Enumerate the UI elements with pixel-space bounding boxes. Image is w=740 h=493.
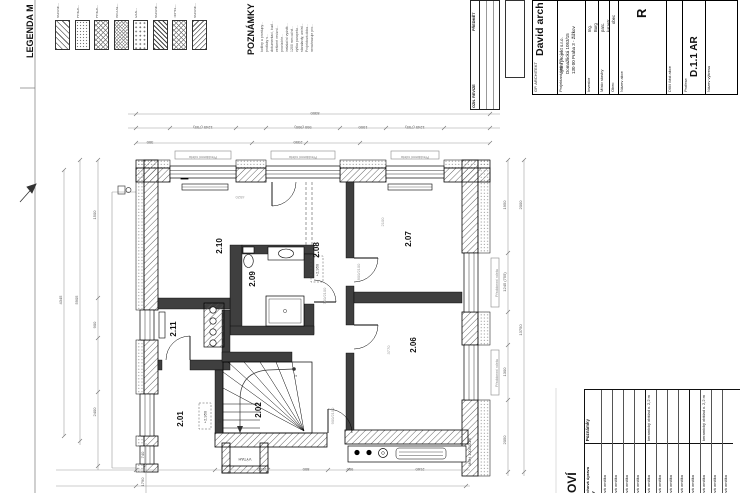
svg-text:2400: 2400 <box>92 407 97 417</box>
title-col-profession: Profese D.1.1 AR <box>682 1 705 94</box>
finish-surface: štuková omítka <box>669 475 673 493</box>
finish-surface: štuková omítka <box>614 475 618 493</box>
room-label: 2.06 <box>409 337 418 353</box>
site-line: parc. <box>601 0 606 32</box>
washbasin <box>279 249 294 258</box>
designer-line: 130 00 Praha 3 - Žižkov <box>572 0 577 74</box>
svg-text:950 (900): 950 (900) <box>294 125 312 130</box>
municipality-value: obec <box>612 0 617 24</box>
svg-text:1245 (755): 1245 (755) <box>193 125 213 130</box>
title-col-investor: Investor Ing. Burg <box>585 1 598 94</box>
legend-title: LEGENDA M <box>26 0 36 58</box>
legend-swatch <box>192 20 207 50</box>
svg-text:800: 800 <box>302 467 309 472</box>
finishes-row: štuková omítka <box>623 390 634 493</box>
drawing-sheet: 2.10 2.09 2.08 2.07 2.11 2.01 2.02 2.06 … <box>0 0 740 493</box>
svg-text:300: 300 <box>146 140 153 145</box>
architect-name: David arch <box>535 0 547 56</box>
elevator-label: VÝTAH <box>238 457 251 462</box>
finishes-row: štuková omítka <box>601 390 612 493</box>
svg-text:13750: 13750 <box>518 324 523 336</box>
finish-surface: štuková omítka <box>625 475 629 493</box>
project-name: R <box>635 0 649 18</box>
svg-text:1950: 1950 <box>502 200 507 210</box>
finish-note: keramický obklad v. 2,2 m <box>647 395 651 441</box>
svg-text:1300: 1300 <box>502 367 507 377</box>
revision-header-predmet: PŘEDMĚT <box>472 0 476 31</box>
legend-swatch <box>114 20 129 50</box>
gutter-icon <box>118 186 131 194</box>
title-col-designer: Projektant část PD optim projekt s.r.o. … <box>557 1 585 94</box>
legend-label: TEPEL... <box>174 0 178 18</box>
finishes-row: keramický obklad v. 2,2 m štuková omítka <box>700 390 711 493</box>
title-col-municipality: Obec obec <box>609 1 618 94</box>
finish-surface: štuková omítka <box>658 475 662 493</box>
svg-text:2000: 2000 <box>518 200 523 210</box>
corridor-opening-dashed <box>306 182 312 245</box>
legend-swatch <box>133 20 148 50</box>
svg-text:2100: 2100 <box>380 217 385 227</box>
svg-text:Předokenní roleta: Předokenní roleta <box>401 155 429 159</box>
investor-line: Ing. <box>588 0 593 32</box>
legend-swatch <box>75 20 90 50</box>
svg-text:+2,950: +2,950 <box>203 410 208 423</box>
finishes-header-notes: Poznámky <box>586 419 591 441</box>
svg-text:800/2100: 800/2100 <box>356 263 361 280</box>
field-label: Investor <box>587 48 591 92</box>
revision-row-divider <box>486 1 487 109</box>
svg-text:1000: 1000 <box>358 125 368 130</box>
notes-title: POZNÁMKY <box>247 0 257 55</box>
field-label: Dílčí část akce <box>668 48 672 92</box>
field-label: Místo stavby <box>600 48 604 92</box>
legend-swatch <box>94 20 109 50</box>
room-label: 2.01 <box>176 411 185 427</box>
svg-text:Předokenní roleta: Předokenní roleta <box>495 269 499 297</box>
finishes-row: štuková omítka <box>689 390 700 493</box>
wc-tank <box>243 247 254 253</box>
title-block: GP. ARCHITEKT David arch Projektant část… <box>532 0 738 95</box>
svg-text:1245 (755): 1245 (755) <box>405 125 425 130</box>
svg-text:900: 900 <box>92 321 97 328</box>
beam-annotation: MSH 100/100/6 <box>467 437 472 466</box>
svg-text:4345: 4345 <box>58 295 63 305</box>
legend-label: INSTAL... <box>116 0 120 18</box>
field-label: Obec <box>611 48 615 92</box>
legend-label: NOSNÉ... <box>194 0 198 18</box>
svg-text:8300: 8300 <box>310 111 320 116</box>
finishes-header-col: Poznámky Povrchová úprava stěny <box>585 390 601 493</box>
finishes-row: keramický obklad v. 2,2 m štuková omítka <box>645 390 656 493</box>
svg-text:740: 740 <box>140 451 145 458</box>
finishes-row: štuková omítka <box>634 390 645 493</box>
finishes-row: štuková omítka <box>612 390 623 493</box>
svg-text:900: 900 <box>346 467 353 472</box>
chimney <box>204 303 224 347</box>
finish-surface: štuková omítka <box>691 475 695 493</box>
cooktop-burner <box>366 450 371 455</box>
finishes-row: štuková omítka <box>656 390 667 493</box>
finishes-row: štuková omítka <box>711 390 722 493</box>
revision-table-header: OZN. REVIZE PŘEDMĚT <box>471 1 480 109</box>
finishes-table: Poznámky Povrchová úprava stěny štuková … <box>584 389 740 493</box>
svg-text:Předokenní roleta: Předokenní roleta <box>495 359 499 387</box>
room-label: 2.08 <box>312 242 321 258</box>
finishes-row: štuková omítka <box>722 390 733 493</box>
revision-row-divider <box>493 1 494 109</box>
finishes-row: štuková omítka <box>678 390 689 493</box>
svg-text:700/2100: 700/2100 <box>322 287 327 304</box>
revision-table: OZN. REVIZE PŘEDMĚT <box>470 0 500 110</box>
wc-bowl <box>244 255 254 268</box>
title-col-project: Název akce R <box>618 1 666 94</box>
finishes-header-surface: Povrchová úprava stěny <box>586 467 596 493</box>
room-label: 2.09 <box>248 271 257 287</box>
kitchen-fixtures <box>348 446 466 462</box>
svg-text:1: 1 <box>294 375 298 377</box>
svg-text:1245 (755): 1245 (755) <box>502 272 507 292</box>
svg-text:3770: 3770 <box>386 345 391 355</box>
svg-text:2350: 2350 <box>293 140 303 145</box>
finish-surface: štuková omítka <box>636 475 640 493</box>
legend-swatch <box>153 20 168 50</box>
notes-lines: kotliny a prostupy...protlaky s...dokume… <box>261 0 315 52</box>
revision-header-ozn: OZN. REVIZE <box>472 56 476 108</box>
finish-surface: štuková omítka <box>724 475 728 493</box>
finish-note: keramický obklad v. 2,2 m <box>702 395 706 441</box>
finish-surface: štuková omítka <box>702 475 706 493</box>
title-col-site: Místo stavby parc. katastr. <box>598 1 609 94</box>
finish-surface: štuková omítka <box>603 475 607 493</box>
cooktop-burner <box>354 450 359 455</box>
staircase <box>223 362 312 433</box>
field-label: Název výkresu <box>707 48 711 92</box>
svg-text:900/2100: 900/2100 <box>330 407 335 424</box>
drainer <box>396 448 446 459</box>
legend-label: IZOL... <box>135 0 139 18</box>
legend-label: PŘÍČK... <box>77 0 81 18</box>
finish-surface: štuková omítka <box>647 475 651 493</box>
legend-swatch <box>55 20 70 50</box>
title-col-part: Dílčí část akce <box>666 1 682 94</box>
finish-surface: štuková omítka <box>713 475 717 493</box>
profession-value: D.1.1 AR <box>689 0 700 77</box>
svg-text:Předokenní roleta: Předokenní roleta <box>189 155 217 159</box>
svg-text:+2,950: +2,950 <box>315 263 320 276</box>
room-label: 2.11 <box>169 321 178 337</box>
svg-text:2160: 2160 <box>415 467 425 472</box>
interior-walls <box>158 182 462 433</box>
room-label: 2.02 <box>254 402 263 418</box>
room-label: 2.07 <box>404 231 413 247</box>
svg-text:4520: 4520 <box>235 195 245 200</box>
roof-overhang-line <box>112 192 136 468</box>
north-arrow-icon <box>20 184 36 202</box>
legend-label: NOSNÉ... <box>155 0 159 18</box>
legend-swatch <box>172 20 187 50</box>
field-label: Název akce <box>620 48 624 92</box>
svg-text:Předokenní roleta: Předokenní roleta <box>289 155 317 159</box>
svg-text:5905: 5905 <box>74 295 79 305</box>
svg-text:2050: 2050 <box>502 435 507 445</box>
svg-text:17: 17 <box>218 419 222 423</box>
legend-label: NOSNÉ... <box>57 0 61 18</box>
legend-label: PŘÍČK... <box>96 0 100 18</box>
finish-surface: štuková omítka <box>680 475 684 493</box>
svg-text:2150: 2150 <box>257 467 267 472</box>
title-col-architect: GP. ARCHITEKT David arch <box>533 1 557 94</box>
title-col-drawing: Název výkresu <box>705 1 737 94</box>
finishes-row: štuková omítka <box>667 390 678 493</box>
finishes-heading: OVÍ <box>566 412 579 493</box>
svg-text:1500: 1500 <box>92 210 97 220</box>
stamp-box <box>505 0 525 78</box>
room-label: 2.10 <box>215 238 224 254</box>
svg-text:1790: 1790 <box>140 477 145 487</box>
note-line: nenahrazuje pro... <box>311 0 315 52</box>
